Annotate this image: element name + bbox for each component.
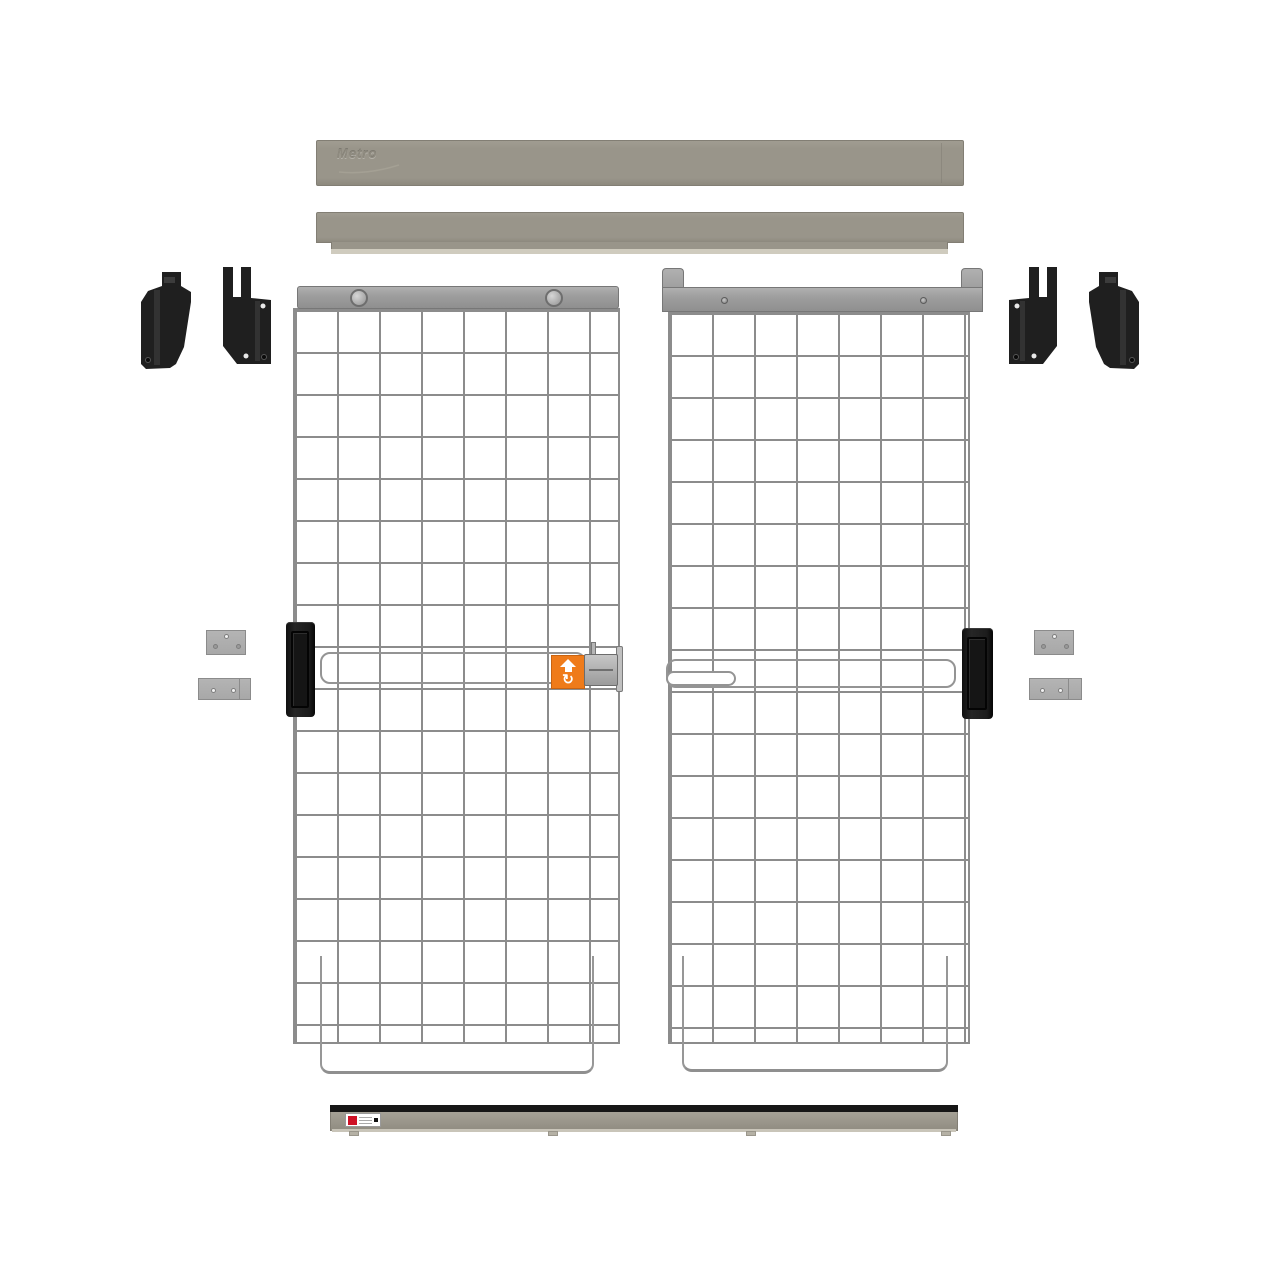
metro-logo: Metro bbox=[337, 147, 417, 177]
arrow-up-icon bbox=[560, 659, 576, 667]
plate-hole bbox=[1040, 688, 1045, 693]
handle-recess bbox=[967, 637, 987, 710]
latch-slide-body bbox=[584, 654, 618, 686]
metro-logo-swoosh bbox=[337, 164, 403, 174]
header-screw bbox=[721, 297, 728, 304]
right-door-slide-bar bbox=[666, 671, 736, 686]
plate-hole bbox=[236, 644, 241, 649]
track-mounting-tab bbox=[746, 1131, 756, 1136]
plate-seam bbox=[1068, 679, 1069, 699]
wall-plate-left-bottom bbox=[198, 678, 251, 700]
corner-bracket-left-inner bbox=[219, 267, 274, 368]
latch-instruction-sticker: ↻ bbox=[551, 655, 585, 689]
plate-seam bbox=[239, 679, 240, 699]
metro-logo-text: Metro bbox=[337, 147, 417, 161]
plate-hole bbox=[211, 688, 216, 693]
bottom-track-label bbox=[345, 1113, 381, 1127]
right-door-bottom-guide-loop bbox=[682, 956, 948, 1072]
left-door-slide-channel bbox=[320, 652, 586, 684]
wall-plate-right-bottom bbox=[1029, 678, 1082, 700]
rotate-arrow-icon: ↻ bbox=[562, 673, 574, 686]
right-door-header-ear-right bbox=[961, 268, 983, 289]
plate-hole bbox=[1058, 688, 1063, 693]
parts-diagram-canvas: Metro bbox=[0, 0, 1280, 1280]
plate-hole bbox=[1064, 644, 1069, 649]
right-door-header bbox=[662, 287, 983, 312]
label-text-lines bbox=[359, 1117, 372, 1124]
wall-plate-right-top bbox=[1034, 630, 1074, 655]
left-door-header bbox=[297, 286, 619, 309]
plate-hole bbox=[224, 634, 229, 639]
corner-bracket-right-inner bbox=[1006, 267, 1061, 368]
top-track-lip bbox=[331, 249, 948, 254]
metro-logo-mark-icon bbox=[348, 1116, 357, 1125]
bottom-track-bottom-edge bbox=[332, 1129, 956, 1132]
bracket-logo-mark bbox=[1105, 277, 1116, 283]
wall-plate-left-top bbox=[206, 630, 246, 655]
bottom-track-top-edge bbox=[330, 1105, 958, 1112]
bracket-logo-mark bbox=[164, 277, 175, 283]
rail-seam bbox=[941, 143, 942, 183]
left-door-bottom-guide-loop bbox=[320, 956, 594, 1074]
corner-bracket-right-outer bbox=[1086, 272, 1144, 372]
top-track-face-inset bbox=[331, 242, 948, 249]
track-mounting-tab bbox=[349, 1131, 359, 1136]
plate-hole bbox=[1052, 634, 1057, 639]
label-code-square bbox=[374, 1118, 378, 1122]
header-screw bbox=[920, 297, 927, 304]
right-door-handle bbox=[962, 628, 993, 719]
corner-bracket-left-outer bbox=[136, 272, 194, 372]
track-mounting-tab bbox=[941, 1131, 951, 1136]
door-roller bbox=[350, 289, 368, 307]
top-track-face bbox=[316, 212, 964, 243]
top-retainer-bar: Metro bbox=[316, 140, 964, 186]
plate-hole bbox=[1041, 644, 1046, 649]
handle-recess bbox=[291, 631, 309, 708]
latch-groove bbox=[589, 669, 613, 671]
plate-hole bbox=[231, 688, 236, 693]
left-door-handle bbox=[286, 622, 315, 717]
door-roller bbox=[545, 289, 563, 307]
right-door-header-ear-left bbox=[662, 268, 684, 289]
plate-hole bbox=[213, 644, 218, 649]
track-mounting-tab bbox=[548, 1131, 558, 1136]
